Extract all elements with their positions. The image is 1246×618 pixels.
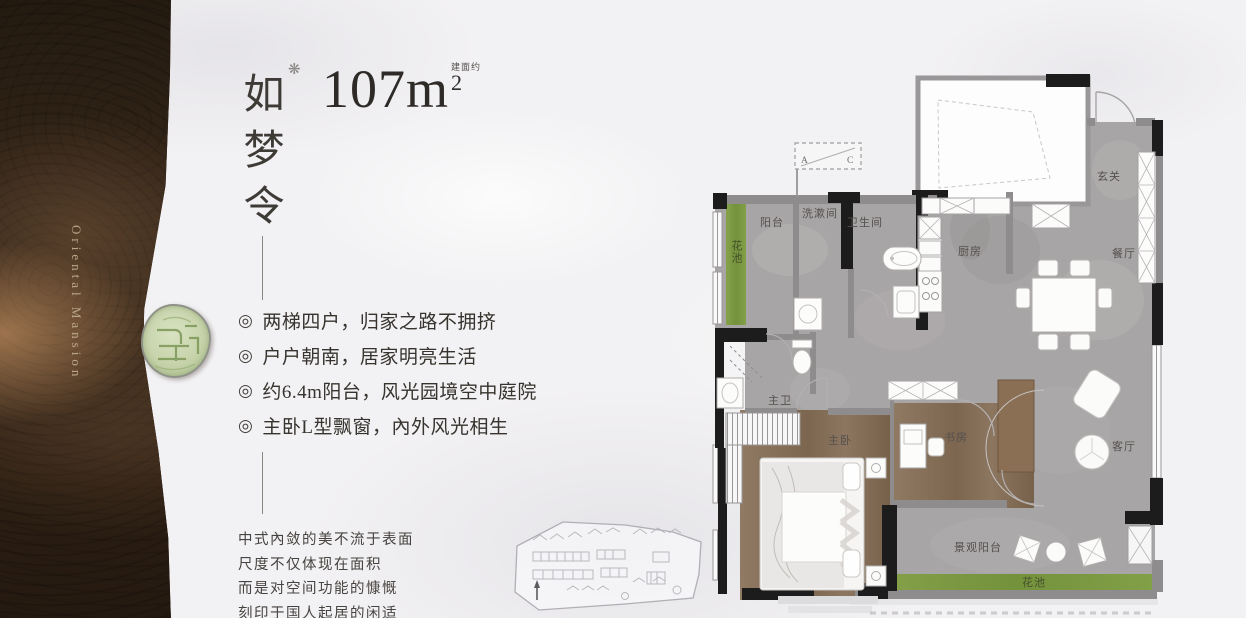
room-label-master-bath: 主卫	[768, 394, 792, 407]
title-char: 如	[238, 66, 290, 122]
room-label-entry: 玄关	[1097, 169, 1121, 183]
ac-platform: A C	[795, 143, 861, 196]
title-char: 梦	[238, 122, 290, 178]
feature-item: ◎主卧L型飘窗，內外风光相生	[238, 408, 537, 443]
room-label-master-bedroom: 主卧	[828, 434, 852, 447]
room-label-balcony: 阳台	[760, 215, 784, 229]
brand-vertical-text: Oriental Mansion	[68, 225, 84, 380]
jade-seal-icon	[141, 304, 211, 378]
divider	[262, 236, 263, 300]
flower-seal-icon: ❋	[288, 60, 301, 78]
flower-bed-bottom	[872, 574, 1154, 590]
room-label-washroom: 洗漱间	[802, 207, 838, 220]
page-title: ❋ 如 梦 令	[238, 66, 290, 234]
feature-text: 两梯四户，归家之路不拥挤	[262, 307, 496, 334]
feature-text: 主卧L型飘窗，內外风光相生	[262, 412, 508, 439]
entry-cabinet	[1138, 152, 1155, 283]
feature-text: 户户朝南，居家明亮生活	[262, 342, 477, 369]
area-superscript: 2	[451, 72, 481, 94]
site-plan-sketch	[505, 512, 710, 618]
tv-cabinet	[998, 380, 1034, 472]
room-label-flower-bed-left: 花池	[730, 240, 743, 264]
title-char: 令	[238, 178, 290, 234]
poster: Oriental Mansion ❋ 如 梦 令 107m建面约2 ◎	[0, 0, 1246, 618]
ring-bullet-icon: ◎	[238, 346, 253, 366]
area-value: 107m	[322, 59, 449, 119]
room-label-flower-bed-bottom: 花池	[1022, 576, 1046, 589]
ring-bullet-icon: ◎	[238, 381, 253, 401]
room-label-study: 书房	[944, 431, 968, 444]
description-line: 而是对空间功能的慷慨	[238, 577, 414, 602]
ring-bullet-icon: ◎	[238, 311, 253, 331]
description-line: 中式內敛的美不流于表面	[238, 528, 414, 553]
room-label-dining: 餐厅	[1112, 246, 1136, 260]
description: 中式內敛的美不流于表面 尺度不仅体现在面积 而是对空间功能的慷慨 刻印于国人起居…	[238, 528, 414, 618]
void-box	[912, 74, 1090, 204]
feature-text: 约6.4m阳台，风光园境空中庭院	[262, 377, 537, 404]
room-label-living: 客厅	[1112, 439, 1136, 453]
room-label-kitchen: 厨房	[958, 245, 982, 258]
ac-label-a: A	[801, 156, 809, 166]
flower-bed-left	[726, 203, 746, 325]
area-figure: 107m建面约2	[322, 62, 481, 116]
feature-item: ◎户户朝南，居家明亮生活	[238, 338, 537, 373]
feature-item: ◎两梯四户，归家之路不拥挤	[238, 303, 537, 338]
floor-plan: A C	[700, 0, 1246, 618]
ring-bullet-icon: ◎	[238, 416, 253, 436]
divider	[262, 452, 263, 514]
room-label-scenic-balcony: 景观阳台	[954, 540, 1002, 554]
ac-label-c: C	[847, 156, 854, 166]
description-line: 刻印于国人起居的闲适	[238, 602, 414, 618]
feature-item: ◎约6.4m阳台，风光园境空中庭院	[238, 373, 537, 408]
room-label-bathroom: 卫生间	[847, 215, 883, 229]
feature-list: ◎两梯四户，归家之路不拥挤 ◎户户朝南，居家明亮生活 ◎约6.4m阳台，风光园境…	[238, 303, 537, 443]
description-line: 尺度不仅体现在面积	[238, 553, 414, 578]
